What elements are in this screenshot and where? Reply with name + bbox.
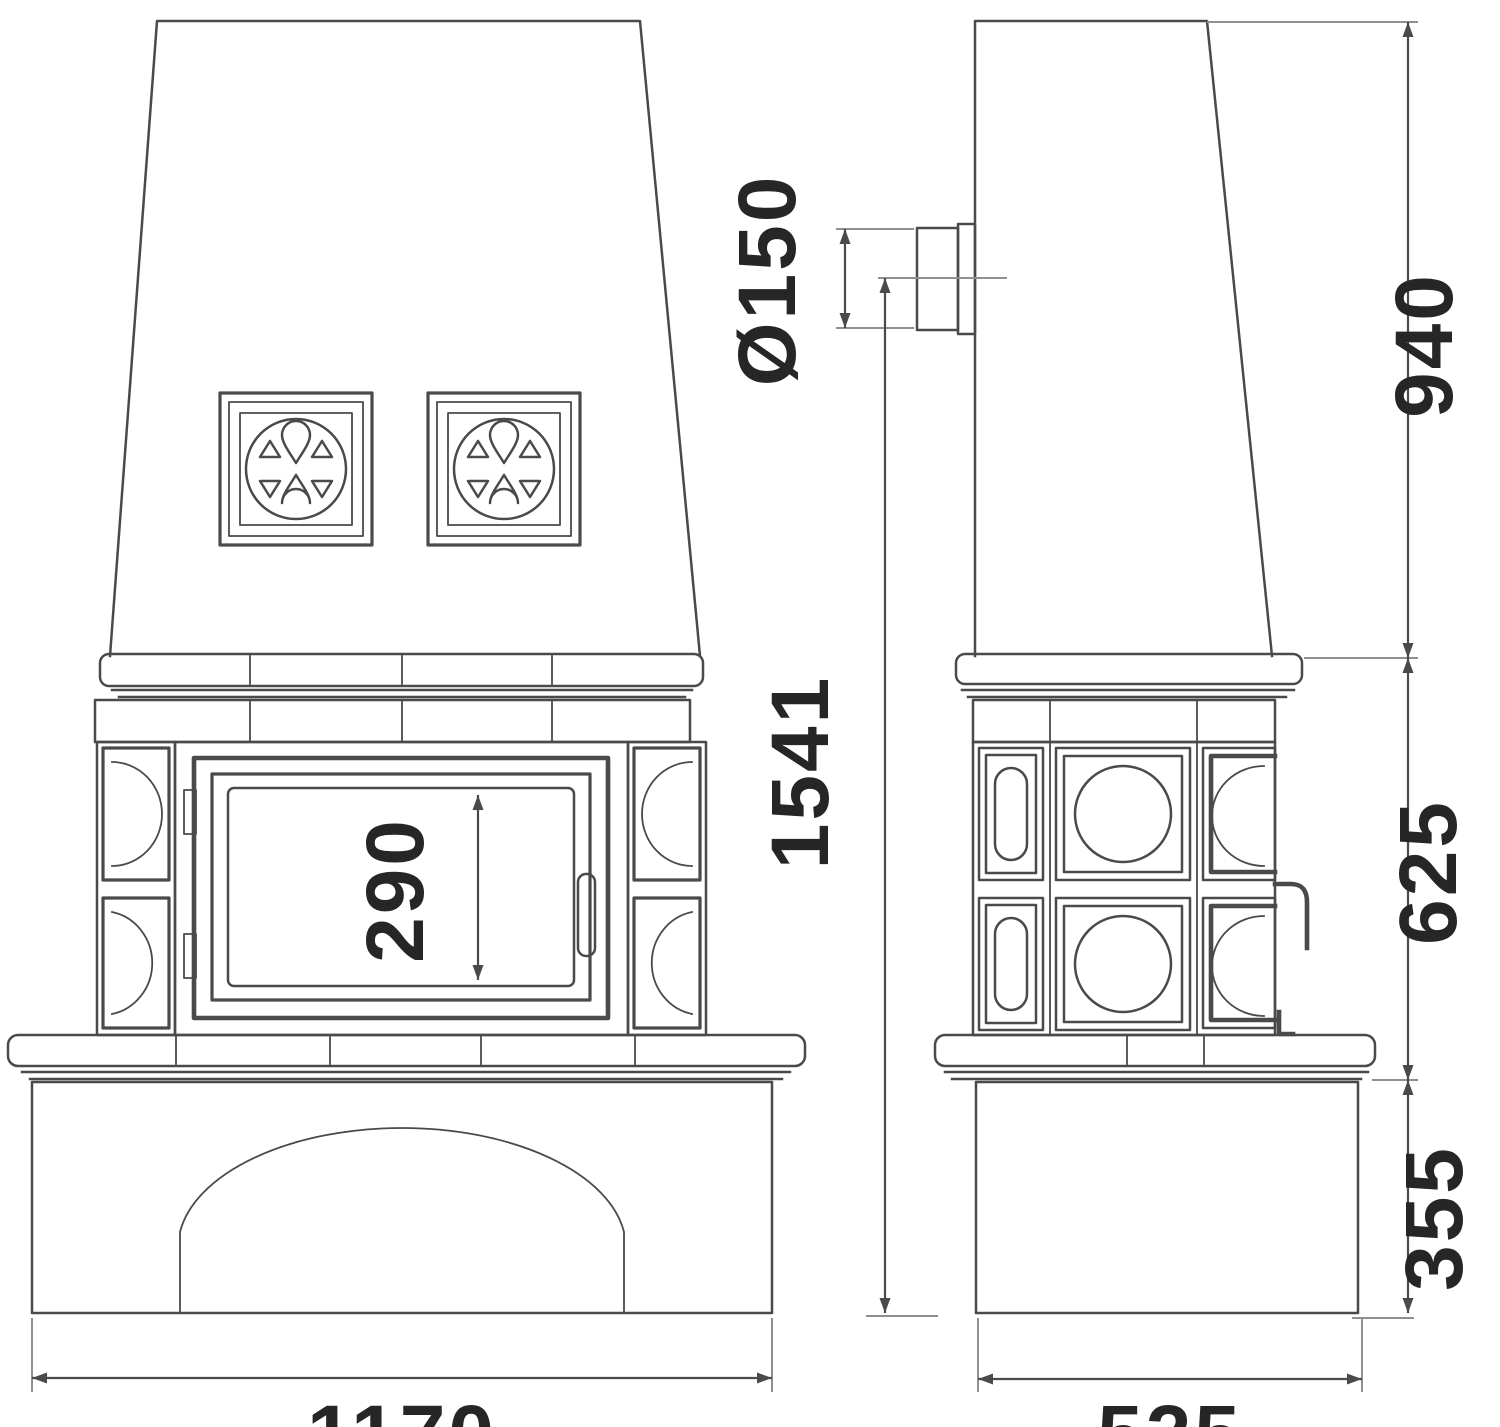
side-tile-right-top: [1203, 748, 1275, 880]
door-handle-front: [578, 874, 595, 956]
side-tile-stadium-top: [979, 748, 1043, 880]
side-tile-body: [973, 742, 1307, 1035]
base-arch: [180, 1128, 624, 1313]
dim-label-total-height: 1541: [755, 675, 846, 869]
dim-side-depth: 525: [978, 1318, 1362, 1427]
front-right-tile-column: [628, 742, 706, 1035]
dim-label-door-opening: 290: [350, 817, 441, 963]
dim-label-flue-diameter: Ø150: [722, 174, 813, 387]
door-handle-foot: [1279, 1012, 1293, 1034]
front-chimney-hood: [110, 21, 700, 656]
dim-front-width: 1170: [32, 1318, 772, 1427]
front-mantel-shelf: [100, 654, 703, 697]
dim-label-middle-height: 625: [1383, 799, 1474, 945]
side-view: [878, 21, 1375, 1313]
dim-right-chain: 940 625 355: [1207, 22, 1480, 1318]
side-tile-right-bottom: [1203, 898, 1275, 1028]
side-hearth-shelf: [935, 1035, 1375, 1079]
front-view: [8, 21, 805, 1313]
side-tile-stadium-bottom: [979, 898, 1043, 1030]
dim-label-front-width: 1170: [307, 1389, 497, 1427]
door-handle-side: [1275, 884, 1307, 948]
side-upper-band: [973, 700, 1275, 742]
dim-door-opening: 290: [350, 795, 484, 980]
front-hatch-band: [95, 700, 690, 742]
side-base-plinth: [976, 1082, 1358, 1313]
dim-label-upper-height: 940: [1379, 272, 1470, 418]
rosette-tile-right: [428, 393, 580, 545]
dim-label-side-depth: 525: [1097, 1389, 1243, 1427]
side-tile-circle-bottom: [1056, 898, 1190, 1030]
dim-label-base-height: 355: [1389, 1145, 1480, 1291]
front-left-tile-column: [97, 742, 175, 1035]
side-chimney: [975, 21, 1272, 656]
side-tile-circle-top: [1056, 748, 1190, 880]
rosette-tile-left: [220, 393, 372, 545]
side-mantel-shelf: [956, 654, 1302, 697]
stove-dimension-drawing: Ø150 1541 290 940 625 355: [0, 0, 1500, 1427]
dim-total-height: 1541: [755, 278, 938, 1316]
technical-drawing-page: Ø150 1541 290 940 625 355: [0, 0, 1500, 1427]
front-hearth-shelf: [8, 1035, 805, 1079]
front-base-plinth: [32, 1082, 772, 1313]
flue-outlet: [878, 224, 1007, 334]
